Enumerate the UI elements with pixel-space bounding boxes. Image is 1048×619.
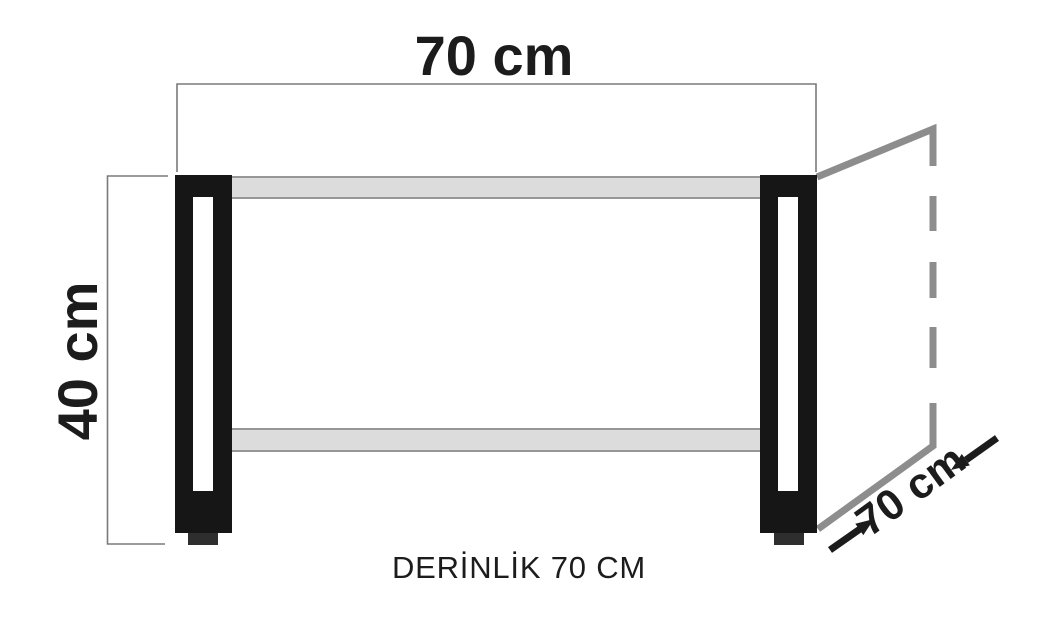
depth-caption: DERİNLİK 70 CM — [392, 550, 646, 586]
dimension-diagram: 70 cm 40 cm 70 cm DERİNLİK 70 CM — [0, 0, 1048, 619]
height-dimension-line — [108, 176, 169, 544]
height-dimension-label: 40 cm — [50, 282, 106, 441]
leg-inner-slot-right — [778, 197, 798, 491]
leg-inner-slot-left — [193, 197, 213, 491]
table-leg-right — [760, 175, 817, 533]
table-bottom-shelf — [230, 428, 761, 452]
table-leg-left — [175, 175, 232, 533]
table-foot-left — [188, 533, 218, 545]
depth-top-edge-line — [817, 129, 933, 177]
table-top-panel — [230, 176, 761, 199]
width-dimension-label: 70 cm — [415, 28, 574, 84]
table-foot-right — [774, 533, 804, 545]
width-dimension-line — [177, 84, 816, 172]
